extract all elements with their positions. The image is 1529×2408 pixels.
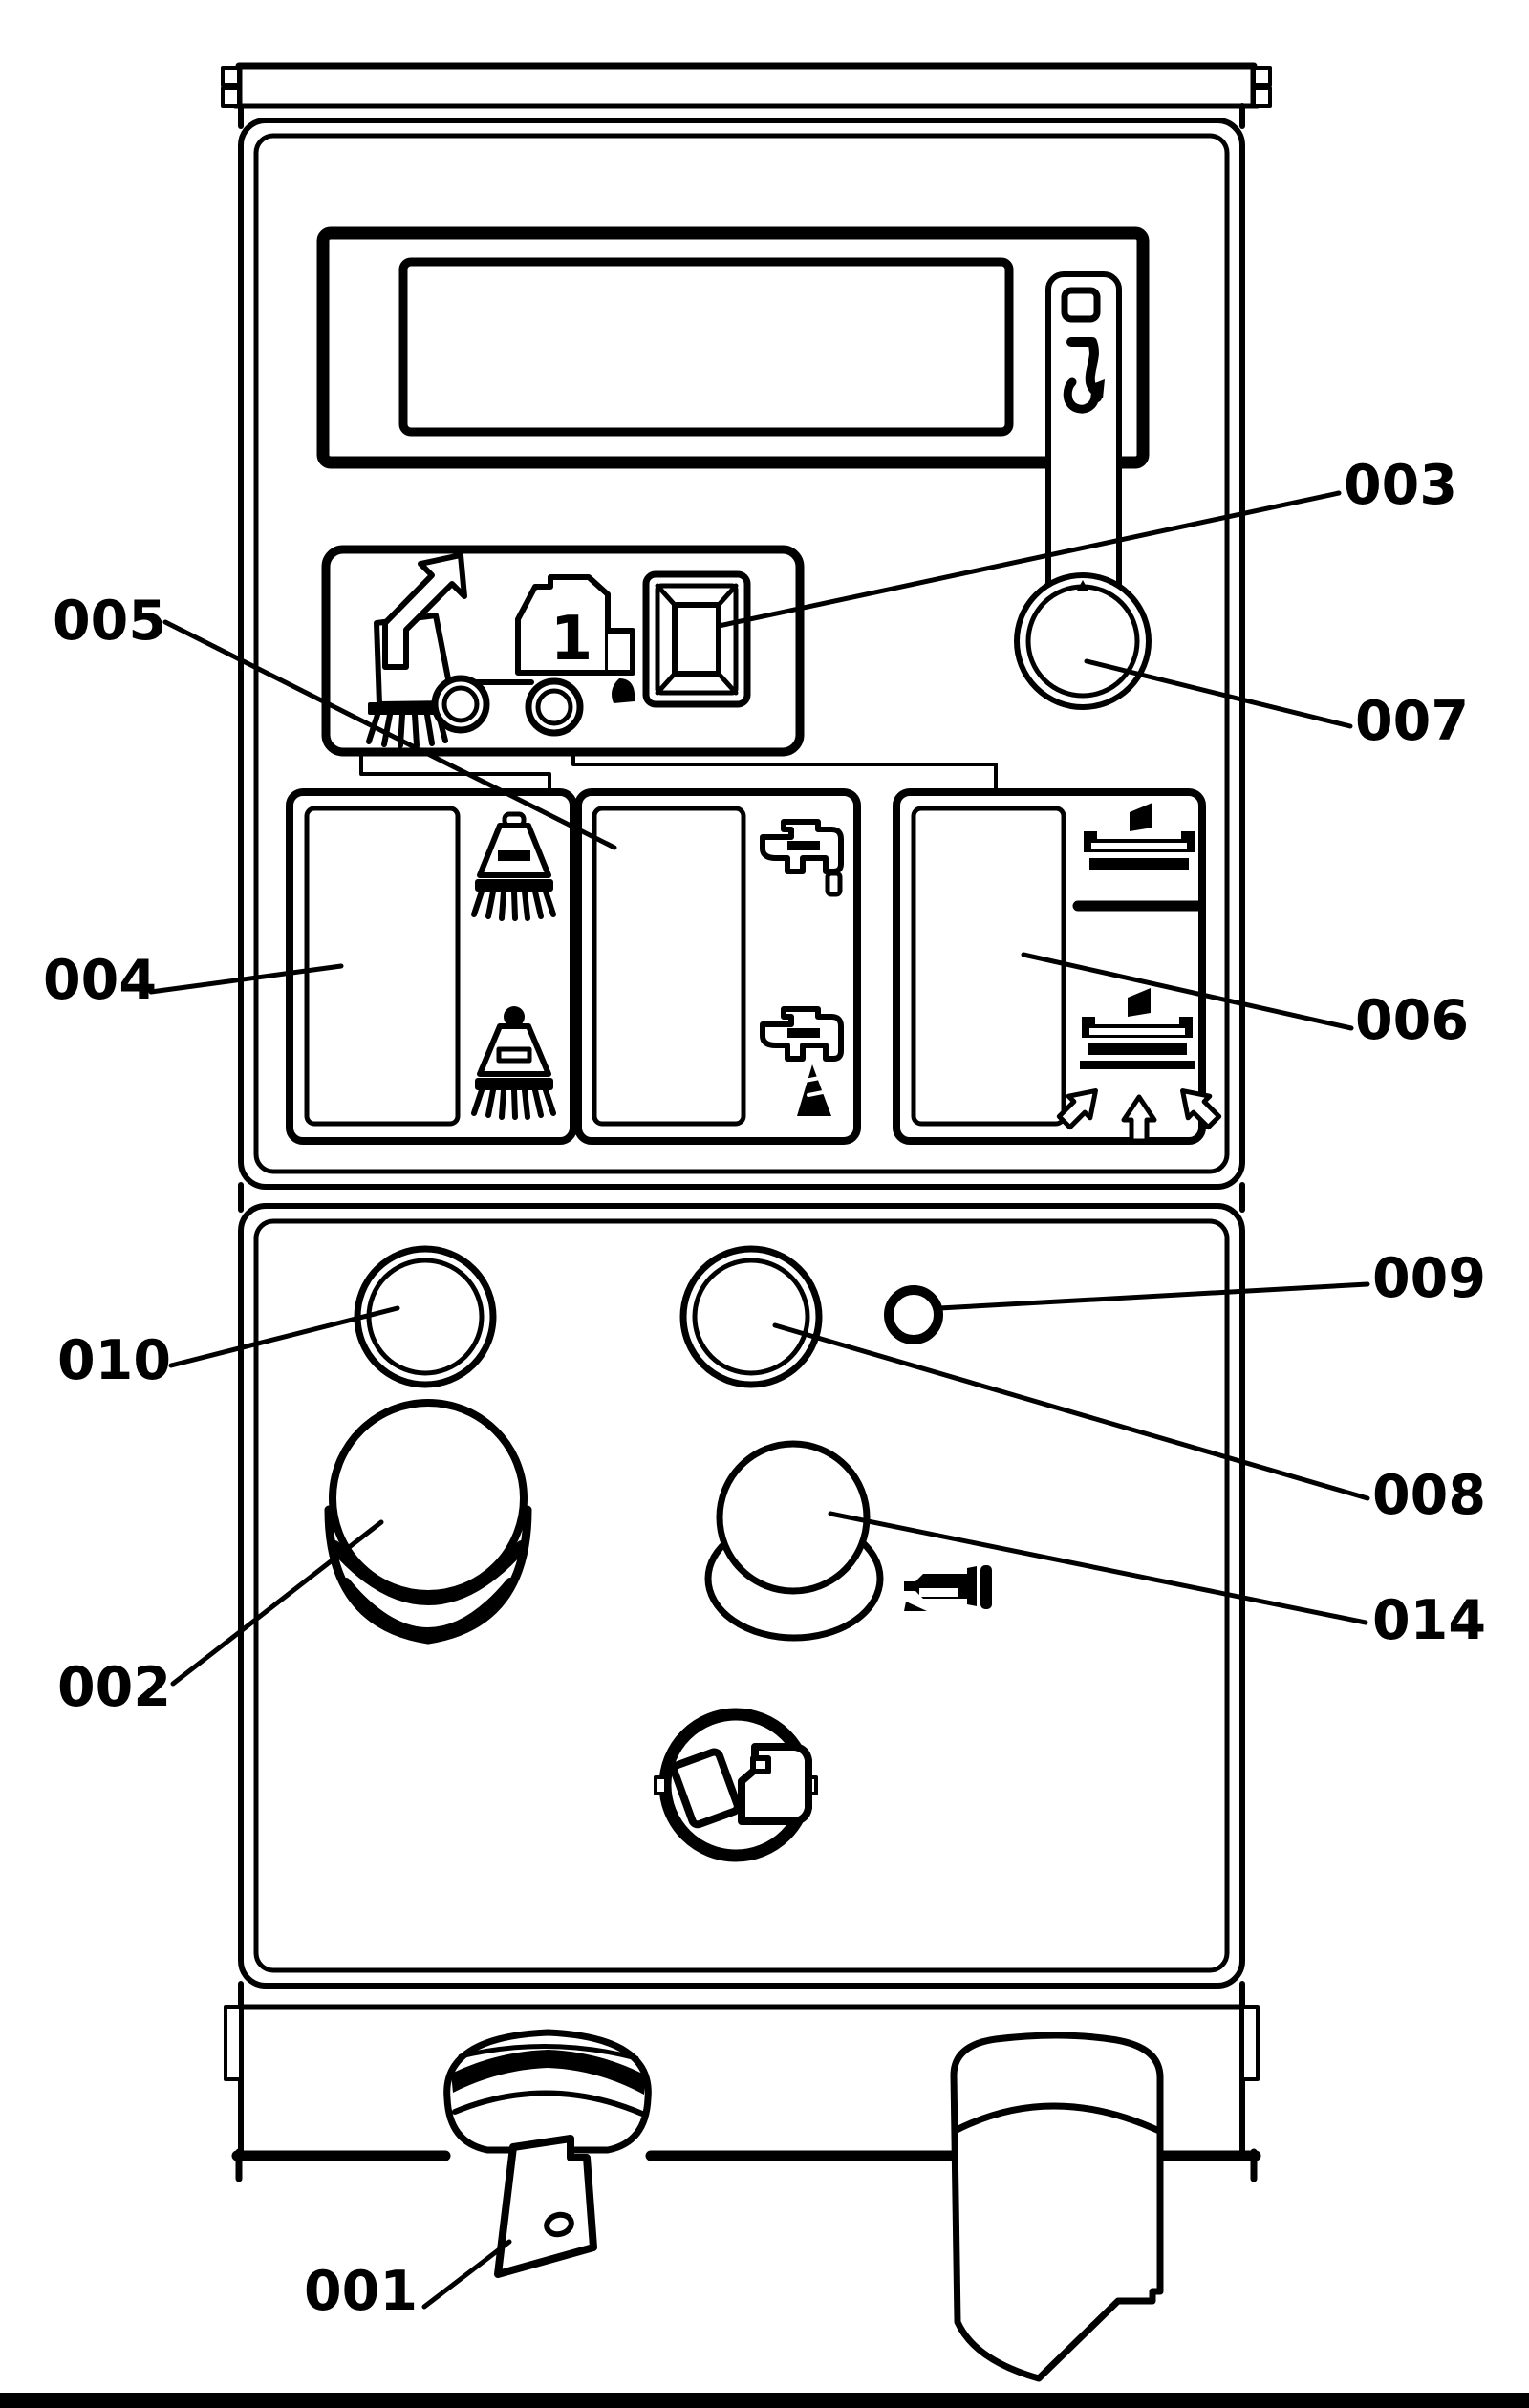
button-008 [683, 1249, 819, 1385]
truck-mode-number: 1 [550, 604, 593, 675]
callout-label-010: 010 [57, 1334, 171, 1388]
diagram-page: 1 [0, 0, 1529, 2408]
switch-blank-face [914, 808, 1064, 1124]
ignition-key [498, 2139, 593, 2274]
hinge-tab [223, 88, 239, 106]
horn-button-014 [708, 1444, 880, 1638]
callout-label-006: 006 [1355, 994, 1469, 1048]
display-window [403, 262, 1009, 432]
top-rail [239, 66, 1254, 105]
callout-label-014: 014 [1372, 1594, 1486, 1648]
callout-label-009: 009 [1372, 1252, 1486, 1306]
callout-label-003: 003 [1344, 459, 1457, 513]
hinge-tab [1254, 88, 1270, 106]
callout-label-005: 005 [53, 594, 166, 649]
callout-label-001: 001 [304, 2265, 418, 2319]
button-010 [357, 1249, 493, 1385]
rotary-knob-007 [1017, 575, 1149, 707]
hinge-tab [223, 68, 239, 85]
display-screen [323, 233, 1143, 462]
program-icon-panel: 1 [326, 549, 800, 752]
switch-block-water [578, 792, 857, 1141]
button-009 [889, 1290, 938, 1340]
callout-label-007: 007 [1355, 695, 1469, 749]
switch-blank-face [594, 808, 743, 1124]
bottom-border-bar [0, 2393, 1529, 2408]
control-panel-drawing: 1 [0, 0, 1529, 2408]
switch-block-squeegee [896, 792, 1224, 1141]
hinge-tab [1242, 2007, 1258, 2079]
emergency-stop-button [329, 1403, 528, 1640]
callout-label-002: 002 [57, 1661, 171, 1715]
square-select-button [646, 574, 747, 704]
seatbelt-button [656, 1714, 816, 1856]
cylindrical-component [954, 2035, 1160, 2378]
callout-label-008: 008 [1372, 1469, 1486, 1523]
callout-label-004: 004 [43, 954, 157, 1008]
key-switch [447, 2032, 649, 2274]
hinge-tab [1254, 68, 1270, 85]
hinge-tab [226, 2007, 241, 2079]
info-strip [1048, 274, 1119, 609]
